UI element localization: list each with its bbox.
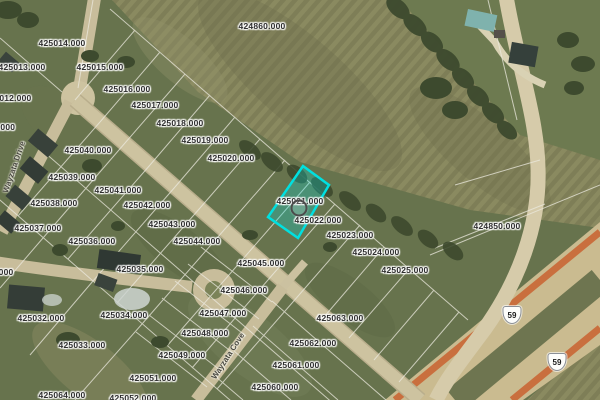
parcel-label[interactable]: 425011.000 — [0, 122, 15, 132]
parcel-label[interactable]: 425045.000 — [238, 258, 285, 268]
route-number: 59 — [508, 311, 517, 320]
parcel-label[interactable]: 425044.000 — [174, 236, 221, 246]
parcel-label[interactable]: 425019.000 — [182, 135, 229, 145]
parcel-label[interactable]: 425047.000 — [200, 308, 247, 318]
parcel-label[interactable]: 425016.000 — [104, 84, 151, 94]
parcel-label[interactable]: 425014.000 — [39, 38, 86, 48]
route-number: 59 — [553, 358, 562, 367]
parcel-label[interactable]: 425038.000 — [31, 198, 78, 208]
parcel-label[interactable]: 425052.000 — [110, 393, 157, 400]
parcel-label[interactable]: 425034.000 — [101, 310, 148, 320]
parcel-label[interactable]: 425064.000 — [39, 390, 86, 400]
parcel-label[interactable]: 425046.000 — [221, 285, 268, 295]
parcel-label[interactable]: 425039.000 — [49, 172, 96, 182]
parcel-label[interactable]: 425048.000 — [182, 328, 229, 338]
parcel-label[interactable]: 425062.000 — [290, 338, 337, 348]
parcel-label[interactable]: 425043.000 — [149, 219, 196, 229]
parcel-label[interactable]: 425018.000 — [157, 118, 204, 128]
parcel-label[interactable]: 425017.000 — [132, 100, 179, 110]
parcel-label[interactable]: 425025.000 — [382, 265, 429, 275]
parcel-label[interactable]: 425020.000 — [208, 153, 255, 163]
parcel-label[interactable]: 425012.000 — [0, 93, 31, 103]
parcel-label[interactable]: 425042.000 — [124, 200, 171, 210]
parcel-label[interactable]: 425023.000 — [327, 230, 374, 240]
parcel-label[interactable]: 424860.000 — [239, 21, 286, 31]
parcel-label[interactable]: 425049.000 — [159, 350, 206, 360]
parcel-label[interactable]: 425036.000 — [69, 236, 116, 246]
street-name-label: Wayzata Drive — [1, 140, 27, 194]
map-viewport[interactable]: 425014.000425013.000425015.000425012.000… — [0, 0, 600, 400]
parcel-label[interactable]: 425024.000 — [353, 247, 400, 257]
parcel-label[interactable]: 425041.000 — [95, 185, 142, 195]
selected-parcel-marker[interactable] — [291, 200, 308, 217]
parcel-label[interactable]: 425015.000 — [77, 62, 124, 72]
parcel-label[interactable]: 424850.000 — [474, 221, 521, 231]
parcel-label[interactable]: 425037.000 — [15, 223, 62, 233]
parcel-label[interactable]: 425035.000 — [117, 264, 164, 274]
parcel-label[interactable]: 425013.000 — [0, 62, 45, 72]
parcel-label[interactable]: 425051.000 — [130, 373, 177, 383]
parcel-label[interactable]: 425031.000 — [0, 267, 13, 277]
parcel-label[interactable]: 425061.000 — [273, 360, 320, 370]
parcel-label[interactable]: 425040.000 — [65, 145, 112, 155]
parcel-label[interactable]: 425032.000 — [18, 313, 65, 323]
parcel-label[interactable]: 425063.000 — [317, 313, 364, 323]
street-name-label: Wayzata Cove — [210, 331, 247, 381]
parcel-label[interactable]: 425060.000 — [252, 382, 299, 392]
parcel-label[interactable]: 425033.000 — [59, 340, 106, 350]
parcel-label[interactable]: 425022.000 — [295, 215, 342, 225]
